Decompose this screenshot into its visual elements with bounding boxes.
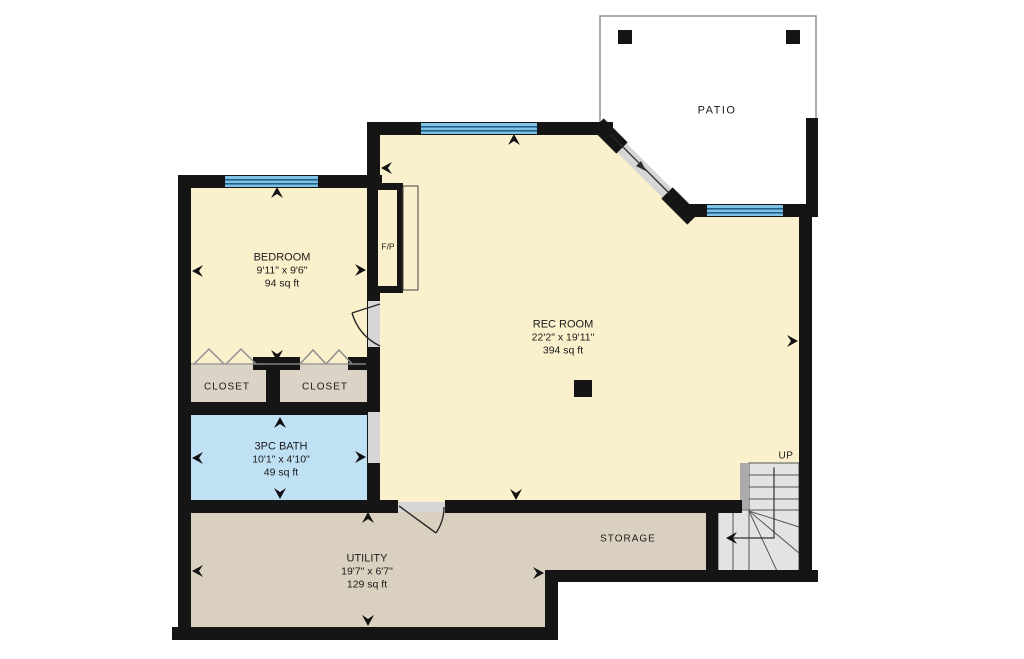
room-name: BEDROOM	[254, 252, 311, 265]
room-area: 129 sq ft	[341, 579, 393, 592]
wall-stairs-left	[706, 508, 718, 582]
bedroom-label: BEDROOM 9'11" x 9'6" 94 sq ft	[254, 252, 311, 291]
room-name: 3PC BATH	[252, 441, 310, 454]
room-dims: 22'2" x 19'11"	[532, 332, 595, 345]
patio-label: PATIO	[698, 105, 737, 118]
room-area: 394 sq ft	[532, 345, 595, 358]
room-name: UTILITY	[341, 553, 393, 566]
rec-room-post	[574, 380, 592, 397]
bath-door-opening	[368, 412, 380, 463]
patio-post-right	[786, 30, 800, 44]
floor-plan-drawing	[0, 0, 1024, 659]
rec-room-label: REC ROOM 22'2" x 19'11" 394 sq ft	[532, 319, 595, 358]
patio-window	[707, 205, 783, 216]
room-name: REC ROOM	[532, 319, 595, 332]
wall-patio-right	[806, 118, 818, 217]
fireplace-box-inner	[378, 190, 397, 286]
closet-right-label: CLOSET	[302, 381, 348, 394]
wall-bottom-left	[172, 627, 558, 640]
wall-right	[799, 204, 812, 582]
room-dims: 10'1" x 4'10"	[252, 454, 310, 467]
room-area: 49 sq ft	[252, 467, 310, 480]
bedroom-window	[225, 176, 318, 187]
patio-post-left	[618, 30, 632, 44]
room-dims: 19'7" x 6'7"	[341, 566, 393, 579]
wall-bottom-right	[545, 570, 818, 582]
wall-utility-top	[445, 500, 742, 513]
bath-label: 3PC BATH 10'1" x 4'10" 49 sq ft	[252, 441, 310, 480]
wall-closet-bottom	[178, 402, 380, 415]
room-dims: 9'11" x 9'6"	[254, 265, 311, 278]
wall-bath-bottom	[178, 500, 398, 513]
storage-label: STORAGE	[600, 533, 656, 546]
rec-room-window	[421, 123, 537, 134]
stairs-up-label: UP	[779, 450, 794, 463]
room-area: 94 sq ft	[254, 278, 311, 291]
fireplace-label: F/P	[381, 241, 394, 254]
floor-plan: BEDROOM 9'11" x 9'6" 94 sq ft REC ROOM 2…	[0, 0, 1024, 659]
closet-left-label: CLOSET	[204, 381, 250, 394]
utility-label: UTILITY 19'7" x 6'7" 129 sq ft	[341, 553, 393, 592]
